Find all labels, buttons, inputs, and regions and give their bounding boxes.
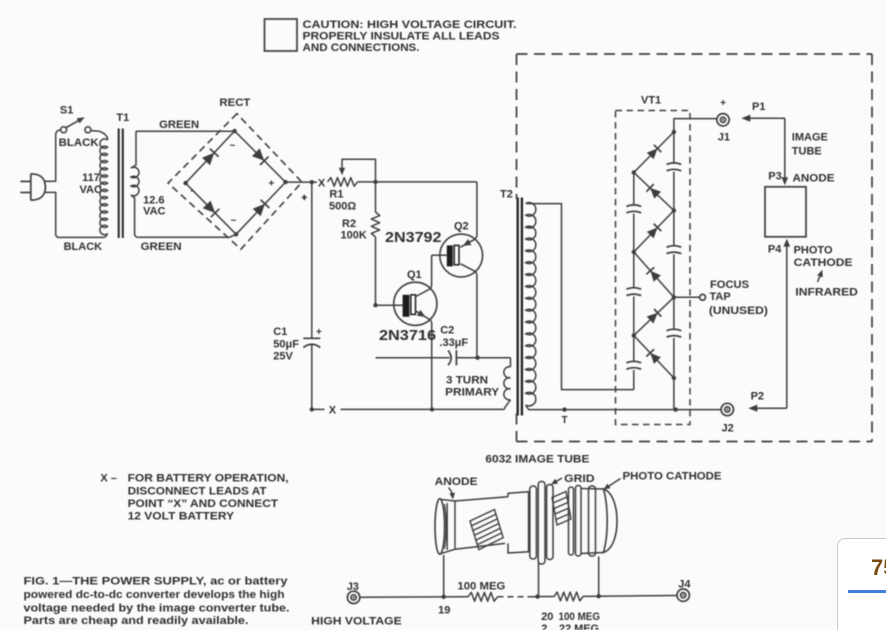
svg-text:FOR BATTERY OPERATION,: FOR BATTERY OPERATION, [128,472,289,484]
svg-text:117: 117 [82,172,100,184]
svg-text:500Ω: 500Ω [329,201,356,213]
svg-text:BLACK: BLACK [64,241,103,253]
svg-text:T: T [561,415,567,426]
svg-text:-: - [191,185,195,197]
svg-text:50μF: 50μF [273,338,299,350]
svg-text:PRIMARY: PRIMARY [445,386,500,398]
svg-text:X: X [318,177,326,189]
svg-text:2: 2 [541,623,547,630]
svg-text:+: + [302,193,308,204]
svg-text:2N3792: 2N3792 [385,230,442,246]
svg-text:R2: R2 [342,218,356,230]
svg-text:AND CONNECTIONS.: AND CONNECTIONS. [303,42,420,54]
svg-text:T1: T1 [116,112,129,124]
svg-text:TUBE: TUBE [792,145,822,157]
svg-text:Q1: Q1 [407,269,422,281]
svg-text:VAC: VAC [80,184,102,196]
svg-text:DISCONNECT LEADS AT: DISCONNECT LEADS AT [128,485,267,497]
svg-text:2N3716: 2N3716 [379,328,436,344]
svg-text:25V: 25V [273,351,293,363]
svg-text:6032 IMAGE TUBE: 6032 IMAGE TUBE [485,454,589,466]
svg-text:R1: R1 [329,188,343,200]
svg-text:ANODE: ANODE [793,172,835,184]
svg-text:CATHODE: CATHODE [794,257,853,269]
svg-text:CAUTION: HIGH VOLTAGE CIRCUIT: CAUTION: HIGH VOLTAGE CIRCUIT. [303,19,517,31]
svg-text:100K: 100K [341,229,367,241]
svg-text:RECT: RECT [219,97,250,109]
svg-text:P1: P1 [752,101,765,113]
svg-text:Parts are cheap and readily av: Parts are cheap and readily available. [24,615,249,627]
svg-text:HIGH VOLTAGE: HIGH VOLTAGE [311,616,402,628]
svg-text:X: X [329,405,337,417]
svg-text:GREEN: GREEN [141,241,182,253]
svg-text:.33μF: .33μF [439,337,468,349]
svg-text:3 TURN: 3 TURN [446,374,488,386]
svg-text:VT1: VT1 [641,94,661,106]
svg-text:P4: P4 [768,244,782,256]
svg-text:PHOTO CATHODE: PHOTO CATHODE [623,471,722,483]
svg-text:VAC: VAC [143,205,165,217]
svg-text:INFRARED: INFRARED [795,287,858,299]
svg-text:~: ~ [230,141,236,152]
svg-text:TAP: TAP [710,291,731,303]
svg-text:C2: C2 [440,324,454,336]
svg-text:J1: J1 [718,131,730,143]
svg-text:FIG. 1—THE POWER SUPPLY, ac or: FIG. 1—THE POWER SUPPLY, ac or battery [24,576,289,588]
svg-text:19: 19 [438,605,450,617]
svg-text:FOCUS: FOCUS [710,279,749,291]
svg-text:+: + [316,327,322,338]
svg-text:100 MEG: 100 MEG [457,580,505,592]
svg-text:POINT “X” AND CONNECT: POINT “X” AND CONNECT [128,498,279,510]
svg-text:IMAGE: IMAGE [792,132,828,144]
svg-text:22 MEG: 22 MEG [559,623,599,630]
svg-text:P2: P2 [751,390,764,402]
svg-text:Q2: Q2 [454,221,469,233]
svg-text:PHOTO: PHOTO [794,244,833,256]
svg-text:C1: C1 [273,326,287,338]
svg-text:J4: J4 [678,579,691,591]
svg-text:P3: P3 [768,170,781,182]
svg-text:~: ~ [231,216,237,227]
svg-text:powered dc-to-dc converter dev: powered dc-to-dc converter develops the … [24,589,285,601]
svg-text:+: + [269,179,275,190]
svg-text:PROPERLY INSULATE ALL LEADS: PROPERLY INSULATE ALL LEADS [303,30,500,42]
svg-text:voltage needed by the image co: voltage needed by the image converter tu… [24,603,290,615]
svg-text:BLACK: BLACK [59,137,99,149]
svg-text:100 MEG: 100 MEG [559,611,601,623]
svg-text:ANODE: ANODE [435,476,478,488]
svg-text:GRID: GRID [564,473,595,485]
svg-text:20: 20 [541,611,553,623]
svg-text:(UNUSED): (UNUSED) [709,305,768,317]
svg-text:X –: X – [100,472,117,484]
svg-text:GREEN: GREEN [159,119,199,131]
svg-text:+: + [720,98,726,109]
svg-text:S1: S1 [60,104,73,116]
svg-text:12 VOLT BATTERY: 12 VOLT BATTERY [128,511,235,523]
svg-text:J3: J3 [347,581,359,593]
svg-text:T2: T2 [500,189,513,201]
svg-text:J2: J2 [722,423,734,435]
